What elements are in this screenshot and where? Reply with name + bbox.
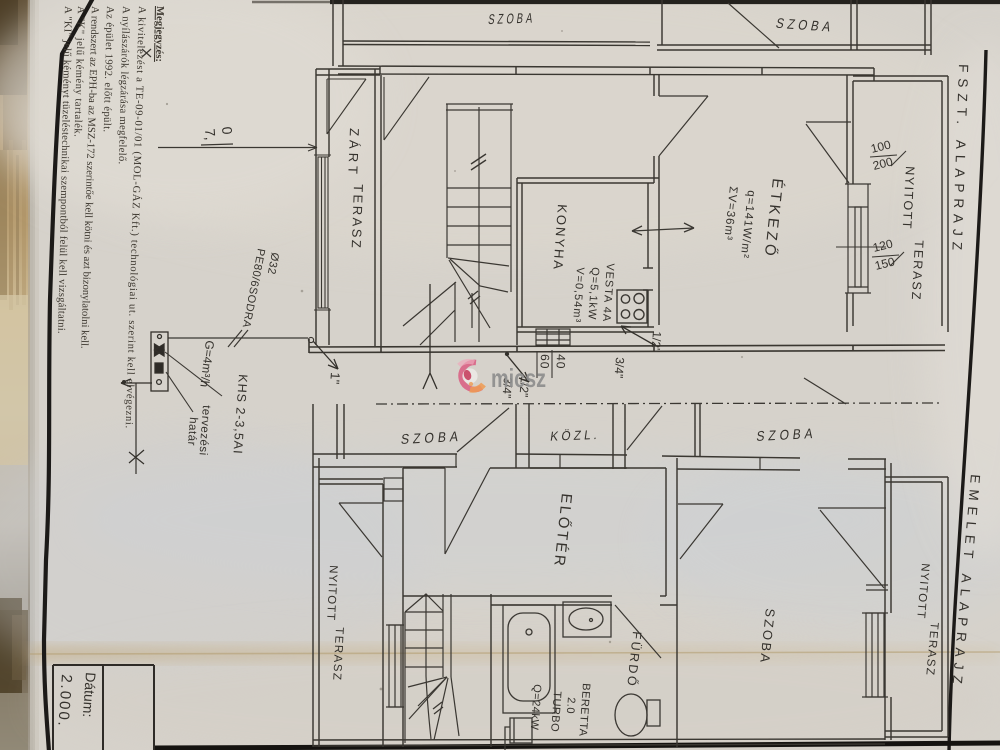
svg-text:KÖZL.: KÖZL. <box>549 427 601 444</box>
svg-text:0: 0 <box>219 126 236 135</box>
svg-text:Dátum:: Dátum: <box>80 672 99 718</box>
svg-text:Megjegyzés:: Megjegyzés: <box>153 6 165 62</box>
svg-text:2.0: 2.0 <box>564 697 577 715</box>
svg-text:7,: 7, <box>202 128 219 141</box>
svg-text:SZOBA: SZOBA <box>400 428 463 447</box>
svg-text:3/4": 3/4" <box>612 357 627 379</box>
svg-text:TERASZ: TERASZ <box>349 184 366 251</box>
svg-text:40: 40 <box>553 354 568 370</box>
svg-text:SZOBA: SZOBA <box>756 425 818 444</box>
svg-text:1/2": 1/2" <box>649 331 664 353</box>
svg-text:határ: határ <box>185 417 199 446</box>
svg-text:1": 1" <box>327 372 343 385</box>
svg-text:ZÁRT: ZÁRT <box>345 128 362 178</box>
svg-text:SZOBA: SZOBA <box>487 10 536 28</box>
svg-text:micsz: micsz <box>491 363 546 393</box>
